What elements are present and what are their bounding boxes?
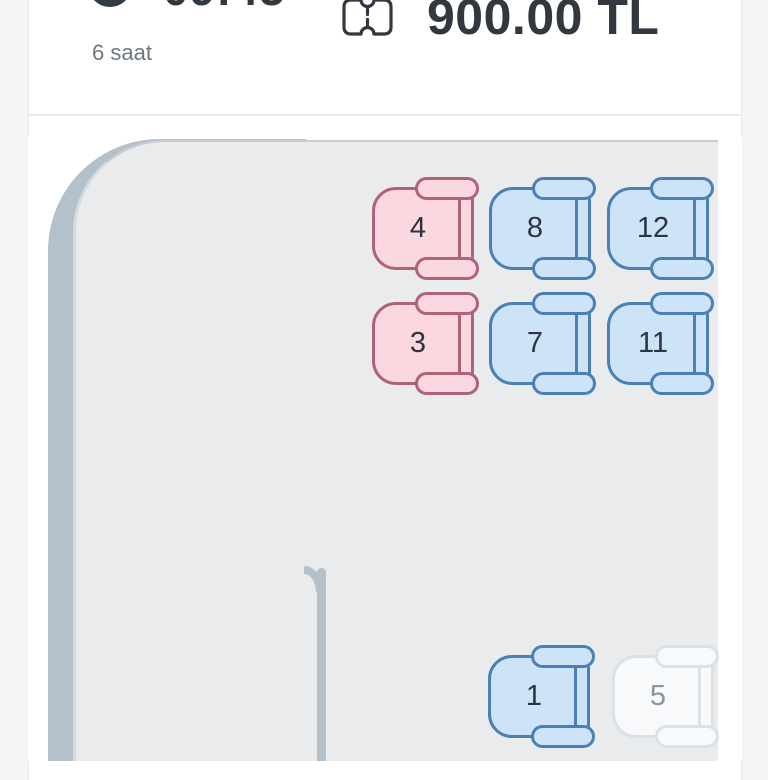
header-divider [28,114,742,116]
seat-12[interactable]: 12 [607,177,714,280]
seat-number: 12 [609,187,697,270]
seat-8[interactable]: 8 [489,177,596,280]
seat-number: 7 [491,302,579,385]
seat-7[interactable]: 7 [489,292,596,395]
seat-number: 1 [490,655,578,738]
seat-number: 5 [614,655,702,738]
seat-5[interactable]: 5 [612,645,719,748]
trip-duration: 6 saat [92,40,152,66]
ticket-price: 900.00 TL [427,0,659,41]
driver-divider-hook [304,566,324,592]
seat-11[interactable]: 11 [607,292,714,395]
seat-4[interactable]: 4 [372,177,479,280]
seat-number: 8 [491,187,579,270]
seat-3[interactable]: 3 [372,292,479,395]
driver-area-divider [317,568,326,761]
seat-number: 3 [374,302,462,385]
seat-number: 11 [609,302,697,385]
seat-map: 4812371115 [28,137,742,761]
seat-1[interactable]: 1 [488,645,595,748]
departure-time: 09:45 [163,0,286,13]
ticket-icon [342,0,393,36]
seat-number: 4 [374,187,462,270]
